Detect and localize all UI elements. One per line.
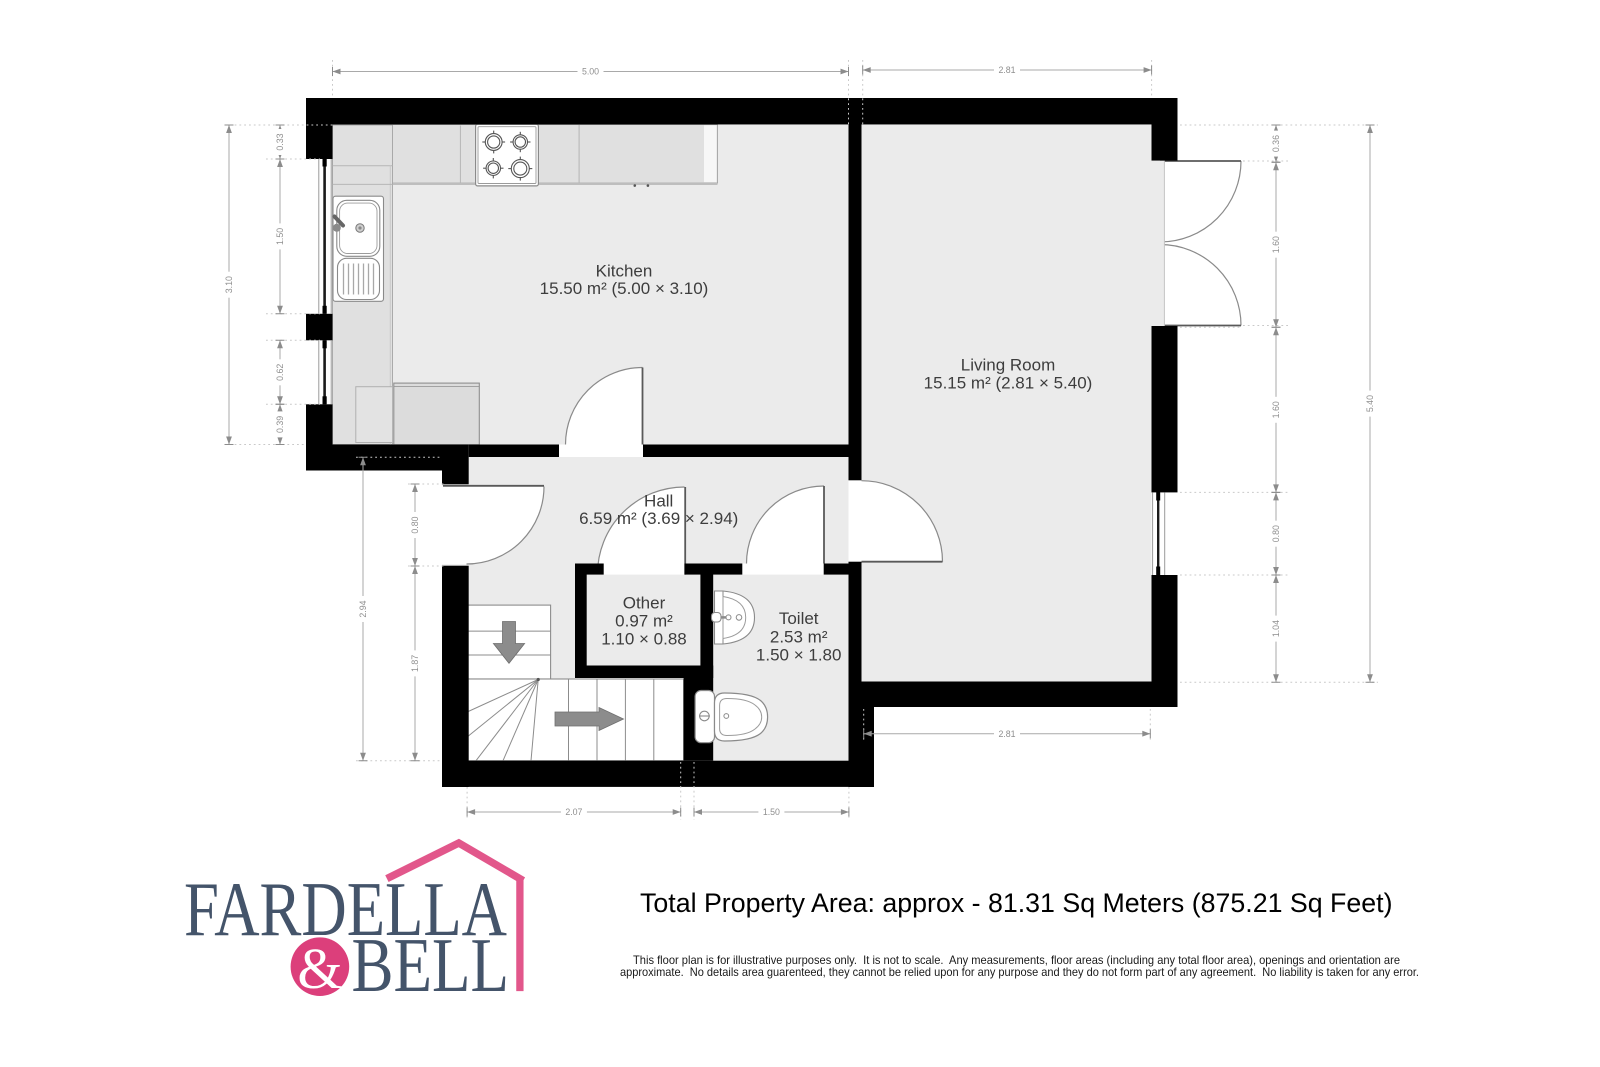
svg-text:2.81: 2.81: [998, 65, 1015, 75]
svg-text:0.62: 0.62: [275, 364, 285, 381]
svg-text:1.60: 1.60: [1271, 236, 1281, 253]
svg-text:2.81: 2.81: [998, 729, 1015, 739]
svg-text:Hall: Hall: [644, 492, 673, 511]
svg-text:3.10: 3.10: [224, 276, 234, 293]
svg-text:1.04: 1.04: [1271, 620, 1281, 637]
svg-text:1.60: 1.60: [1271, 401, 1281, 418]
svg-text:0.33: 0.33: [275, 133, 285, 150]
svg-text:1.50: 1.50: [763, 807, 780, 817]
svg-text:BELL: BELL: [352, 922, 510, 1008]
svg-text:This floor plan is for illustr: This floor plan is for illustrative purp…: [633, 954, 1400, 967]
svg-text:5.00: 5.00: [582, 67, 599, 77]
svg-text:1.50: 1.50: [275, 228, 285, 245]
svg-text:15.50 m² (5.00 × 3.10): 15.50 m² (5.00 × 3.10): [540, 279, 709, 298]
svg-text:0.36: 0.36: [1271, 135, 1281, 152]
svg-text:15.15 m² (2.81 × 5.40): 15.15 m² (2.81 × 5.40): [924, 373, 1093, 392]
svg-text:approximate. No details area: approximate. No details area guarenteed,…: [620, 966, 1419, 979]
svg-text:Toilet: Toilet: [779, 609, 819, 628]
svg-text:0.80: 0.80: [410, 516, 420, 533]
svg-text:6.59 m² (3.69 × 2.94): 6.59 m² (3.69 × 2.94): [579, 509, 738, 528]
svg-text:0.97 m²: 0.97 m²: [615, 612, 673, 631]
svg-text:Living Room: Living Room: [961, 356, 1056, 375]
svg-text:Total Property Area: approx -: Total Property Area: approx - 81.31 Sq M…: [640, 888, 1393, 918]
svg-text:Other: Other: [623, 594, 666, 613]
svg-text:2.07: 2.07: [565, 807, 582, 817]
svg-text:1.50 × 1.80: 1.50 × 1.80: [756, 646, 842, 665]
svg-text:0.80: 0.80: [1271, 525, 1281, 542]
svg-text:2.53 m²: 2.53 m²: [770, 628, 828, 647]
svg-text:5.40: 5.40: [1365, 395, 1375, 412]
svg-text:0.39: 0.39: [275, 416, 285, 433]
svg-text:Kitchen: Kitchen: [596, 262, 653, 281]
svg-text:2.94: 2.94: [358, 600, 368, 617]
svg-text:&: &: [297, 936, 342, 1001]
svg-text:1.87: 1.87: [410, 655, 420, 672]
svg-text:1.10 × 0.88: 1.10 × 0.88: [601, 630, 687, 649]
